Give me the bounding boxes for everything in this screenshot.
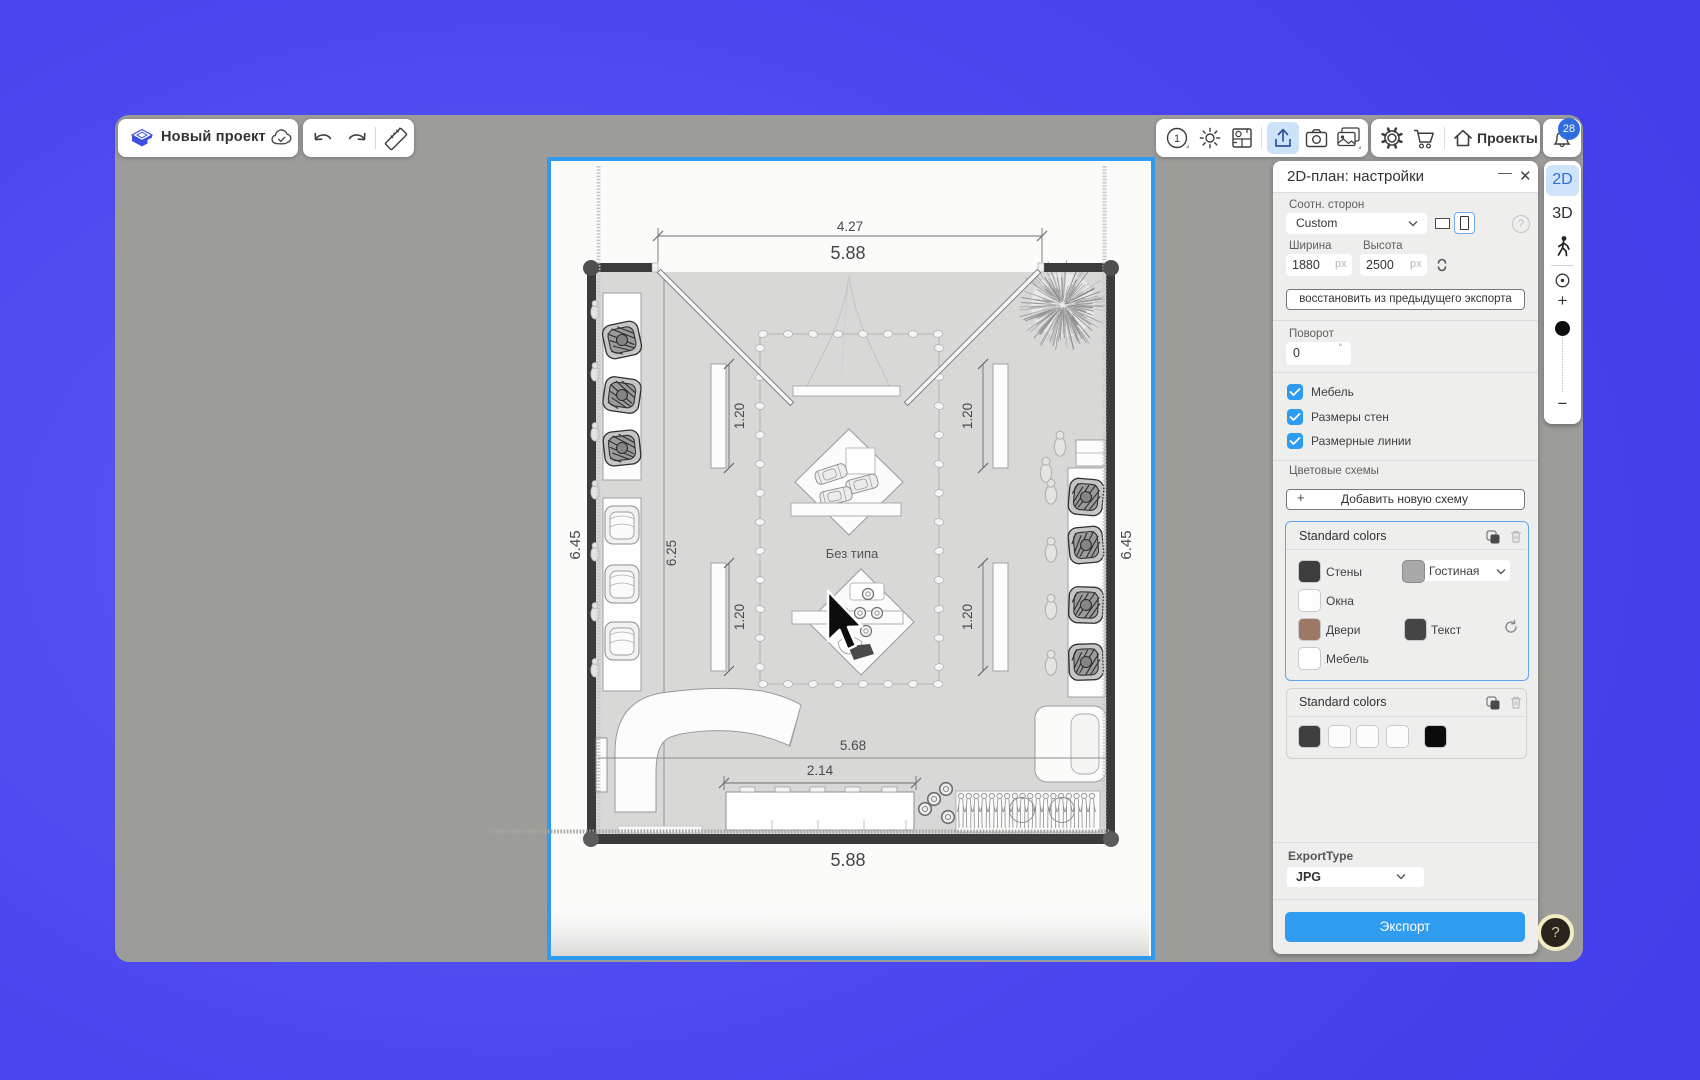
svg-text:6.45: 6.45	[1118, 530, 1135, 559]
svg-text:Без типа: Без типа	[826, 546, 879, 561]
svg-text:5.68: 5.68	[840, 738, 866, 753]
svg-text:4.27: 4.27	[837, 219, 863, 234]
svg-text:1.20: 1.20	[732, 403, 747, 429]
svg-text:5.88: 5.88	[830, 243, 865, 263]
svg-text:5.88: 5.88	[830, 850, 865, 870]
svg-text:6.25: 6.25	[664, 540, 679, 566]
svg-text:1.20: 1.20	[960, 604, 975, 630]
svg-text:1.20: 1.20	[732, 604, 747, 630]
svg-text:1: 1	[1174, 133, 1180, 145]
svg-text:2.14: 2.14	[807, 763, 834, 778]
svg-text:1.20: 1.20	[960, 403, 975, 429]
svg-text:6.45: 6.45	[567, 530, 584, 559]
